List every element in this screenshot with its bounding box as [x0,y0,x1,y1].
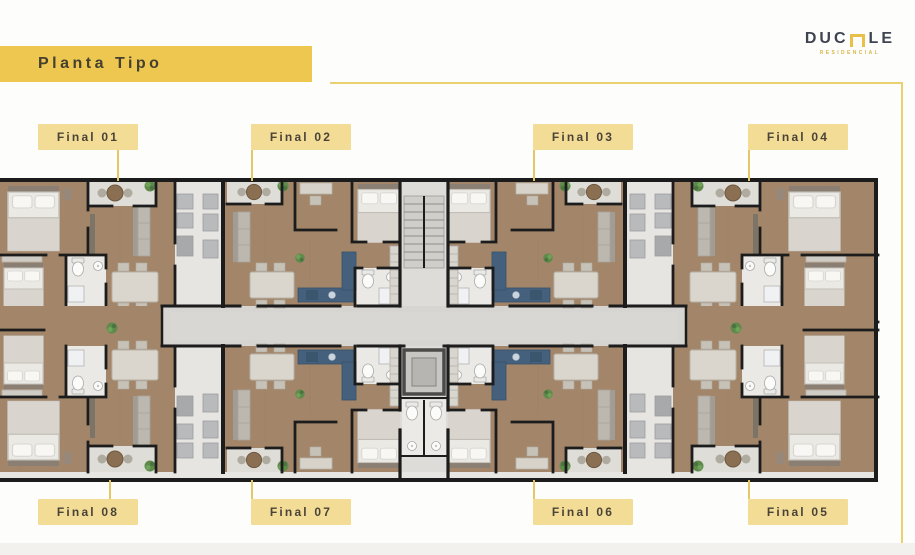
label-final-04: Final 04 [748,124,848,150]
unit-final-07 [223,344,400,472]
title-banner: Planta Tipo [0,46,312,82]
connector-final-03 [533,150,535,181]
connector-final-07 [251,480,253,499]
unit-final-02 [223,180,400,308]
connector-final-02 [251,150,253,181]
connector-final-04 [748,150,750,181]
footer-band [0,543,915,555]
page: Planta Tipo DUCLE RESIDENCIAL Final 01 F… [0,0,915,555]
label-final-01: Final 01 [38,124,138,150]
brand-logo: DUCLE RESIDENCIAL [805,30,895,56]
label-final-03: Final 03 [533,124,633,150]
frame-line-vertical [901,82,903,555]
logo-subtitle: RESIDENCIAL [805,50,895,56]
logo-a-glyph [850,34,865,47]
connector-final-06 [533,480,535,499]
connector-final-08 [109,480,111,499]
unit-final-03 [448,180,625,308]
label-final-06: Final 06 [533,499,633,525]
label-final-08: Final 08 [38,499,138,525]
page-title: Planta Tipo [38,55,162,73]
connector-final-05 [748,480,750,499]
label-final-05: Final 05 [748,499,848,525]
label-final-07: Final 07 [251,499,351,525]
frame-line-horizontal [330,82,902,84]
core-stairs [400,180,448,306]
label-final-02: Final 02 [251,124,351,150]
connector-final-01 [117,150,119,181]
logo-wordmark: DUCLE [805,30,895,48]
unit-final-06 [448,344,625,472]
core-elevator [400,346,448,480]
